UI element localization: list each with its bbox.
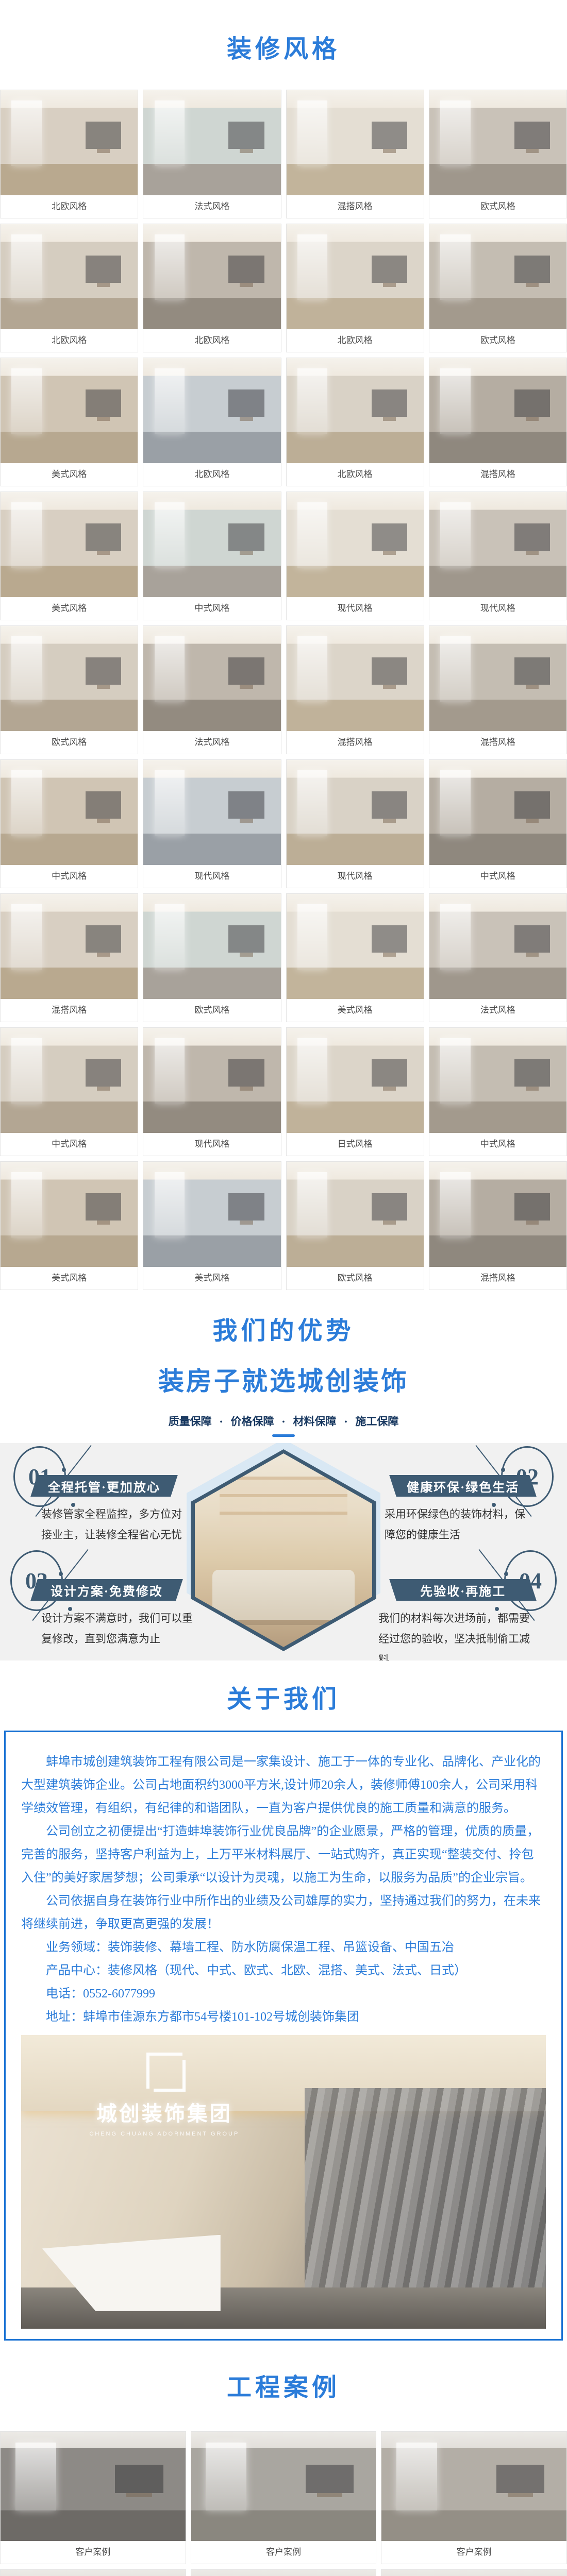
tagline-item: 施工保障 <box>355 1414 398 1429</box>
advantage-banner-text: 设计方案·免费修改 <box>51 1581 163 1599</box>
style-label: 混搭风格 <box>287 731 424 754</box>
advantage-banner-text: 全程托管·更加放心 <box>48 1477 160 1495</box>
style-photo <box>143 1028 280 1133</box>
style-label: 欧式风格 <box>143 999 280 1022</box>
style-card[interactable]: 现代风格 <box>286 759 424 888</box>
style-label: 中式风格 <box>1 1133 138 1156</box>
style-card[interactable]: 法式风格 <box>143 625 281 754</box>
style-label: 北欧风格 <box>143 329 280 352</box>
about-title: 关于我们 <box>0 1683 567 1716</box>
style-label: 法式风格 <box>143 195 280 218</box>
style-label: 混搭风格 <box>287 195 424 218</box>
style-photo <box>143 760 280 865</box>
style-card[interactable]: 混搭风格 <box>286 90 424 218</box>
style-label: 中式风格 <box>429 1133 566 1156</box>
style-card[interactable]: 美式风格 <box>0 492 138 620</box>
style-photo <box>287 1028 424 1133</box>
style-photo <box>1 1162 138 1267</box>
style-card[interactable]: 中式风格 <box>143 492 281 620</box>
advantage-banner-text: 先验收·再施工 <box>420 1581 506 1599</box>
style-label: 北欧风格 <box>287 463 424 486</box>
style-photo <box>287 224 424 329</box>
style-photo <box>429 224 566 329</box>
style-card[interactable]: 北欧风格 <box>143 224 281 352</box>
style-label: 美式风格 <box>287 999 424 1022</box>
advantages-tagline: 质量保障价格保障材料保障施工保障 <box>0 1414 567 1430</box>
style-photo <box>143 492 280 597</box>
style-card[interactable]: 欧式风格 <box>429 90 567 218</box>
advantages-title: 我们的优势 <box>0 1315 567 1348</box>
company-logo: 城创装饰集团 CHENG CHUANG ADORNMENT GROUP <box>89 2053 239 2137</box>
style-photo <box>287 1162 424 1267</box>
project-photo <box>1 2570 186 2576</box>
style-label: 混搭风格 <box>429 463 566 486</box>
company-logo-cn: 城创装饰集团 <box>89 2097 239 2127</box>
project-photo <box>381 2432 566 2541</box>
projects-grid: 客户案例 客户案例 客户案例 客户案例 客户案例 客户案例 <box>0 2431 567 2576</box>
style-label: 现代风格 <box>143 1133 280 1156</box>
style-label: 现代风格 <box>287 597 424 620</box>
advantage-banner-01: 全程托管·更加放心 <box>30 1475 178 1497</box>
style-card[interactable]: 现代风格 <box>429 492 567 620</box>
style-photo <box>429 760 566 865</box>
style-label: 中式风格 <box>1 865 138 888</box>
style-label: 法式风格 <box>143 731 280 754</box>
style-label: 中式风格 <box>143 597 280 620</box>
advantage-banner-04: 先验收·再施工 <box>389 1579 537 1601</box>
style-photo <box>143 358 280 463</box>
project-photo <box>381 2570 566 2576</box>
style-card[interactable]: 美式风格 <box>0 358 138 486</box>
style-label: 中式风格 <box>429 865 566 888</box>
about-paragraph: 公司依据自身在装饰行业中所作出的业绩及公司雄厚的实力，坚持通过我们的努力，在未来… <box>21 1890 546 1936</box>
style-card[interactable]: 现代风格 <box>143 1027 281 1156</box>
style-photo <box>429 1028 566 1133</box>
style-photo <box>143 1162 280 1267</box>
style-photo <box>143 90 280 195</box>
style-photo <box>1 492 138 597</box>
style-label: 混搭风格 <box>429 1267 566 1290</box>
divider-bar <box>272 1434 295 1437</box>
circle-dot <box>504 1572 508 1576</box>
style-photo <box>429 90 566 195</box>
style-photo <box>1 1028 138 1133</box>
style-photo <box>143 626 280 731</box>
style-card[interactable]: 北欧风格 <box>143 358 281 486</box>
style-label: 欧式风格 <box>429 329 566 352</box>
style-card[interactable]: 混搭风格 <box>286 625 424 754</box>
advantage-desc-01: 装修管家全程监控，多方位对接业主，让装修全程省心无忧 <box>41 1504 191 1545</box>
style-label: 混搭风格 <box>429 731 566 754</box>
project-label: 客户案例 <box>1 2541 186 2564</box>
about-paragraph: 蚌埠市城创建筑装饰工程有限公司是一家集设计、施工于一体的专业化、品牌化、产业化的… <box>21 1751 546 1820</box>
style-label: 美式风格 <box>1 597 138 620</box>
project-photo <box>191 2570 376 2576</box>
style-photo <box>429 894 566 999</box>
style-card[interactable]: 中式风格 <box>0 759 138 888</box>
style-card[interactable]: 北欧风格 <box>286 358 424 486</box>
style-photo <box>1 90 138 195</box>
style-card[interactable]: 美式风格 <box>286 893 424 1022</box>
style-card[interactable]: 欧式风格 <box>143 893 281 1022</box>
style-label: 美式风格 <box>1 1267 138 1290</box>
style-label: 法式风格 <box>429 999 566 1022</box>
style-card[interactable]: 中式风格 <box>429 1027 567 1156</box>
advantages-subtitle: 装房子就选城创装饰 <box>0 1364 567 1398</box>
style-card[interactable]: 现代风格 <box>286 492 424 620</box>
project-card[interactable]: 客户案例 <box>0 2569 186 2576</box>
style-photo <box>143 894 280 999</box>
style-label: 现代风格 <box>287 865 424 888</box>
style-card[interactable]: 欧式风格 <box>286 1161 424 1290</box>
project-photo <box>1 2432 186 2541</box>
company-logo-en: CHENG CHUANG ADORNMENT GROUP <box>89 2131 239 2137</box>
style-card[interactable]: 混搭风格 <box>429 625 567 754</box>
tagline-item: 质量保障 <box>169 1414 231 1430</box>
style-card[interactable]: 混搭风格 <box>429 358 567 486</box>
style-photo <box>429 358 566 463</box>
style-label: 北欧风格 <box>287 329 424 352</box>
circle-dot <box>501 1468 505 1472</box>
company-logo-icon <box>146 2053 182 2089</box>
project-card[interactable]: 客户案例 <box>0 2431 186 2564</box>
style-label: 美式风格 <box>1 463 138 486</box>
style-label: 欧式风格 <box>429 195 566 218</box>
style-card[interactable]: 欧式风格 <box>0 625 138 754</box>
advantage-desc-02: 采用环保绿色的装饰材料，保障您的健康生活 <box>385 1504 534 1545</box>
style-label: 北欧风格 <box>143 463 280 486</box>
style-card[interactable]: 中式风格 <box>429 759 567 888</box>
style-photo <box>429 626 566 731</box>
about-box: 蚌埠市城创建筑装饰工程有限公司是一家集设计、施工于一体的专业化、品牌化、产业化的… <box>4 1731 563 2341</box>
about-paragraph: 公司创立之初便提出“打造蚌埠装饰行业优良品牌”的企业愿景，严格的管理，优质的质量… <box>21 1820 546 1890</box>
project-label: 客户案例 <box>191 2541 376 2564</box>
style-label: 现代风格 <box>143 865 280 888</box>
style-photo <box>1 224 138 329</box>
style-card[interactable]: 混搭风格 <box>0 893 138 1022</box>
project-label: 客户案例 <box>381 2541 566 2564</box>
style-card[interactable]: 北欧风格 <box>286 224 424 352</box>
advantage-banner-02: 健康环保·绿色生活 <box>389 1475 537 1497</box>
advantage-desc-04: 我们的材料每次进场前，都需要经过您的验收，坚决抵制偷工减料 <box>378 1608 533 1660</box>
style-card[interactable]: 美式风格 <box>143 1161 281 1290</box>
about-section: 关于我们 蚌埠市城创建筑装饰工程有限公司是一家集设计、施工于一体的专业化、品牌化… <box>0 1683 567 2341</box>
style-label: 欧式风格 <box>287 1267 424 1290</box>
style-photo <box>287 492 424 597</box>
about-products-line: 产品中心：装修风格（现代、中式、欧式、北欧、混搭、美式、法式、日式） <box>21 1959 546 1982</box>
style-label: 混搭风格 <box>1 999 138 1022</box>
project-card[interactable]: 客户案例 <box>191 2431 377 2564</box>
about-business-line: 业务领域：装饰装修、幕墙工程、防水防腐保温工程、吊篮设备、中国五冶 <box>21 1936 546 1959</box>
styles-grid: 北欧风格 法式风格 混搭风格 欧式风格 北欧风格 北欧风格 北欧风格 <box>0 90 567 1290</box>
style-label: 日式风格 <box>287 1133 424 1156</box>
projects-title: 工程案例 <box>0 2371 567 2404</box>
style-photo <box>287 894 424 999</box>
project-card[interactable]: 客户案例 <box>381 2569 567 2576</box>
project-photo <box>191 2432 376 2541</box>
style-photo <box>1 626 138 731</box>
style-card[interactable]: 法式风格 <box>143 90 281 218</box>
style-photo <box>287 760 424 865</box>
project-card[interactable]: 客户案例 <box>381 2431 567 2564</box>
style-card[interactable]: 混搭风格 <box>429 1161 567 1290</box>
style-photo <box>429 1162 566 1267</box>
style-photo <box>1 358 138 463</box>
style-card[interactable]: 日式风格 <box>286 1027 424 1156</box>
styles-section: 装修风格 北欧风格 法式风格 混搭风格 欧式风格 北欧风格 北欧风格 <box>0 0 567 1290</box>
style-label: 北欧风格 <box>1 329 138 352</box>
style-photo <box>287 626 424 731</box>
tagline-item: 材料保障 <box>293 1414 355 1430</box>
circle-dot <box>62 1468 66 1472</box>
project-card[interactable]: 客户案例 <box>191 2569 377 2576</box>
company-office-photo: 城创装饰集团 CHENG CHUANG ADORNMENT GROUP <box>21 2035 546 2329</box>
advantage-desc-03: 设计方案不满意时，我们可以重复修改，直到您满意为止 <box>41 1608 202 1649</box>
style-card[interactable]: 美式风格 <box>0 1161 138 1290</box>
style-card[interactable]: 法式风格 <box>429 893 567 1022</box>
style-label: 北欧风格 <box>1 195 138 218</box>
style-photo <box>287 358 424 463</box>
style-card[interactable]: 北欧风格 <box>0 90 138 218</box>
style-card[interactable]: 欧式风格 <box>429 224 567 352</box>
style-card[interactable]: 中式风格 <box>0 1027 138 1156</box>
about-address-line: 地址：蚌埠市佳源东方都市54号楼101-102号城创装饰集团 <box>21 2006 546 2029</box>
style-label: 欧式风格 <box>1 731 138 754</box>
style-label: 现代风格 <box>429 597 566 620</box>
about-phone-line: 电话：0552-6077999 <box>21 1982 546 2006</box>
style-photo <box>1 894 138 999</box>
style-photo <box>143 224 280 329</box>
circle-dot <box>59 1572 63 1576</box>
style-photo <box>429 492 566 597</box>
styles-section-title: 装修风格 <box>0 33 567 66</box>
style-photo <box>287 90 424 195</box>
advantage-banner-text: 健康环保·绿色生活 <box>407 1477 519 1495</box>
advantages-section: 我们的优势 装房子就选城创装饰 质量保障价格保障材料保障施工保障 01 全程托管… <box>0 1315 567 1660</box>
style-card[interactable]: 现代风格 <box>143 759 281 888</box>
advantage-banner-03: 设计方案·免费修改 <box>30 1579 183 1601</box>
tagline-item: 价格保障 <box>231 1414 293 1430</box>
style-card[interactable]: 北欧风格 <box>0 224 138 352</box>
projects-section: 工程案例 客户案例 客户案例 客户案例 客户案例 客户案例 客户案例 <box>0 2371 567 2576</box>
style-label: 美式风格 <box>143 1267 280 1290</box>
style-photo <box>1 760 138 865</box>
advantages-board: 01 全程托管·更加放心 装修管家全程监控，多方位对接业主，让装修全程省心无忧 … <box>0 1443 567 1660</box>
